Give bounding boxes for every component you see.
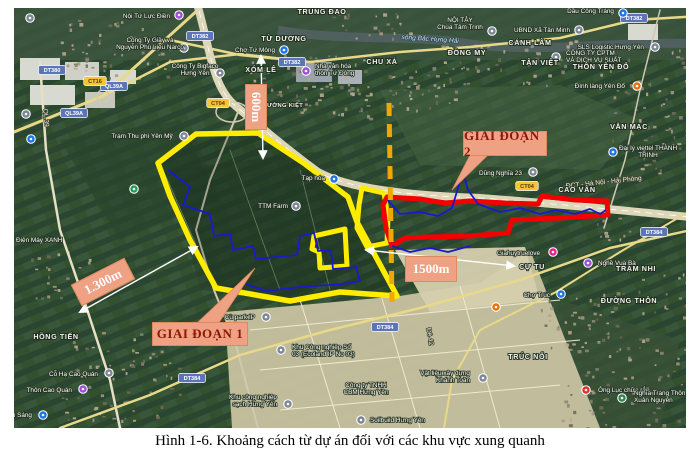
- map-pin-icon: [356, 415, 366, 425]
- map-pin-icon: [528, 167, 538, 177]
- area-label: CHU XÁ: [366, 57, 397, 66]
- map-pin-icon: [583, 258, 593, 268]
- area-label: THÔN YÊN ĐỔ: [573, 62, 629, 71]
- poi-label: Khu Công nghiệp Số03 (Ecoland IP No 03): [292, 342, 355, 358]
- map-pin-icon: [632, 81, 642, 91]
- poi-label: Thôn Cao Quán: [27, 387, 73, 394]
- poi-label: Giahuytruelove: [497, 250, 540, 257]
- road-shield-label: DT382: [284, 60, 301, 66]
- map-pin-icon: [25, 13, 35, 23]
- map-pin-icon: [283, 399, 293, 409]
- area-label: CỰ TU: [519, 262, 545, 271]
- map-pin-icon: [291, 201, 301, 211]
- road-shield-label: CT04: [520, 184, 535, 190]
- poi-label: TTM Farm: [258, 203, 288, 210]
- area-label: TỪ DƯƠNG: [261, 34, 306, 43]
- road-shield-label: DT384: [377, 325, 395, 331]
- map-pin-icon: [581, 385, 591, 395]
- road-shield-label: DT382: [192, 34, 209, 40]
- area-label: TÂN VIỆT: [521, 58, 559, 67]
- map-pin-icon: [617, 393, 627, 403]
- map-pin-icon: [478, 373, 488, 383]
- map-pin-icon: [618, 8, 628, 18]
- poi-label: Công ty TNHHCBM Hưng Yên: [343, 382, 388, 396]
- map-pin-icon: [26, 134, 36, 144]
- area-label: TRÚC NỔI: [508, 352, 548, 361]
- map-pin-icon: [608, 147, 618, 157]
- map-pin-icon: [574, 25, 584, 35]
- map-pin-icon: [38, 410, 48, 420]
- road-shield-label: QL39A: [65, 111, 83, 117]
- map-pin-icon: [487, 26, 497, 36]
- poi-label: Cù park IP: [225, 314, 255, 321]
- road-shield-label: DT380: [44, 68, 61, 74]
- area-label: TRẠM NHI: [616, 264, 656, 273]
- poi-label: Đình làng Yên Đổ: [575, 82, 626, 90]
- phase-1-callout: GIAI ĐOẠN 1: [152, 322, 248, 346]
- map-pin-icon: [104, 368, 114, 378]
- map-pin-icon: [21, 109, 31, 119]
- poi-label: n Sáng: [12, 412, 33, 419]
- road-shield-label: CT04: [211, 101, 226, 107]
- poi-label: Nhà văn hóathôn Tứ Đông: [315, 63, 355, 77]
- poi-label: Dầu Công Tráng: [567, 6, 614, 15]
- poi-label: Dũng Nghĩa 23: [479, 170, 522, 177]
- area-label: CÁNH LÂM: [508, 38, 551, 47]
- map-pin-icon: [174, 10, 184, 20]
- phase-2-callout: GIAI ĐOẠN 2: [463, 131, 547, 156]
- map-pin-icon: [261, 312, 271, 322]
- document-page: DT380QL39AQL39ACT16CT04CT04DT382DT382DT3…: [0, 0, 700, 468]
- road-shield-label: CT16: [88, 79, 102, 85]
- poi-label: Trạm Thu phí Yên Mỹ: [111, 133, 173, 140]
- map-pin-icon: [556, 289, 566, 299]
- poi-label: Tạp hóa: [302, 175, 326, 182]
- area-label: HỒNG TIẾN: [33, 331, 78, 341]
- map-pin-icon: [548, 247, 558, 257]
- poi-label: Soilbuild Hưng Yên: [370, 417, 425, 424]
- map-pin-icon: [279, 45, 289, 55]
- road-shield-label: DT384: [646, 230, 664, 236]
- area-label: ĐƯỜNG THÔN: [601, 296, 657, 305]
- satellite-map-figure: DT380QL39AQL39ACT16CT04CT04DT382DT382DT3…: [0, 0, 700, 468]
- map-pin-icon: [179, 131, 189, 141]
- area-label: CAO VÂN: [558, 185, 595, 194]
- map-pin-icon: [129, 184, 139, 194]
- map-pin-icon: [276, 345, 286, 355]
- poi-label: Điện Máy XANH: [16, 237, 63, 244]
- distance-label-600m: 600m: [245, 84, 267, 130]
- area-label: ĐỒNG MY: [448, 47, 487, 57]
- road-shield-label: DT382: [626, 16, 643, 22]
- road-shield-label: QL39A: [105, 84, 123, 90]
- poi-label: Nội Tứ Lực Điền: [123, 11, 171, 20]
- distance-label-1500m: 1500m: [405, 256, 457, 282]
- map-pin-icon: [650, 42, 660, 52]
- satellite-map: DT380QL39AQL39ACT16CT04CT04DT382DT382DT3…: [0, 0, 700, 468]
- map-pin-icon: [491, 302, 501, 312]
- figure-caption: Hình 1-6. Khoảng cách từ dự án đối với c…: [0, 433, 700, 450]
- map-pin-icon: [78, 384, 88, 394]
- area-label: XÓM LÊ: [245, 65, 276, 74]
- road-shield-label: DT384: [184, 376, 202, 382]
- map-pin-icon: [329, 174, 339, 184]
- poi-label: Cỗ Hạ Cao Quán: [49, 369, 98, 378]
- map-pin-icon: [301, 66, 311, 76]
- poi-label: Khu công nghiệpsạch Hưng Yên: [229, 394, 277, 408]
- poi-label: Chợ Trúc: [523, 292, 550, 299]
- poi-label: UBND Xã Tân Minh: [514, 27, 570, 34]
- area-label: VĂN MẠC: [610, 122, 648, 131]
- area-label: TRUNG ĐẠO: [298, 7, 347, 16]
- poi-label: Chợ Tứ Mông: [235, 47, 275, 54]
